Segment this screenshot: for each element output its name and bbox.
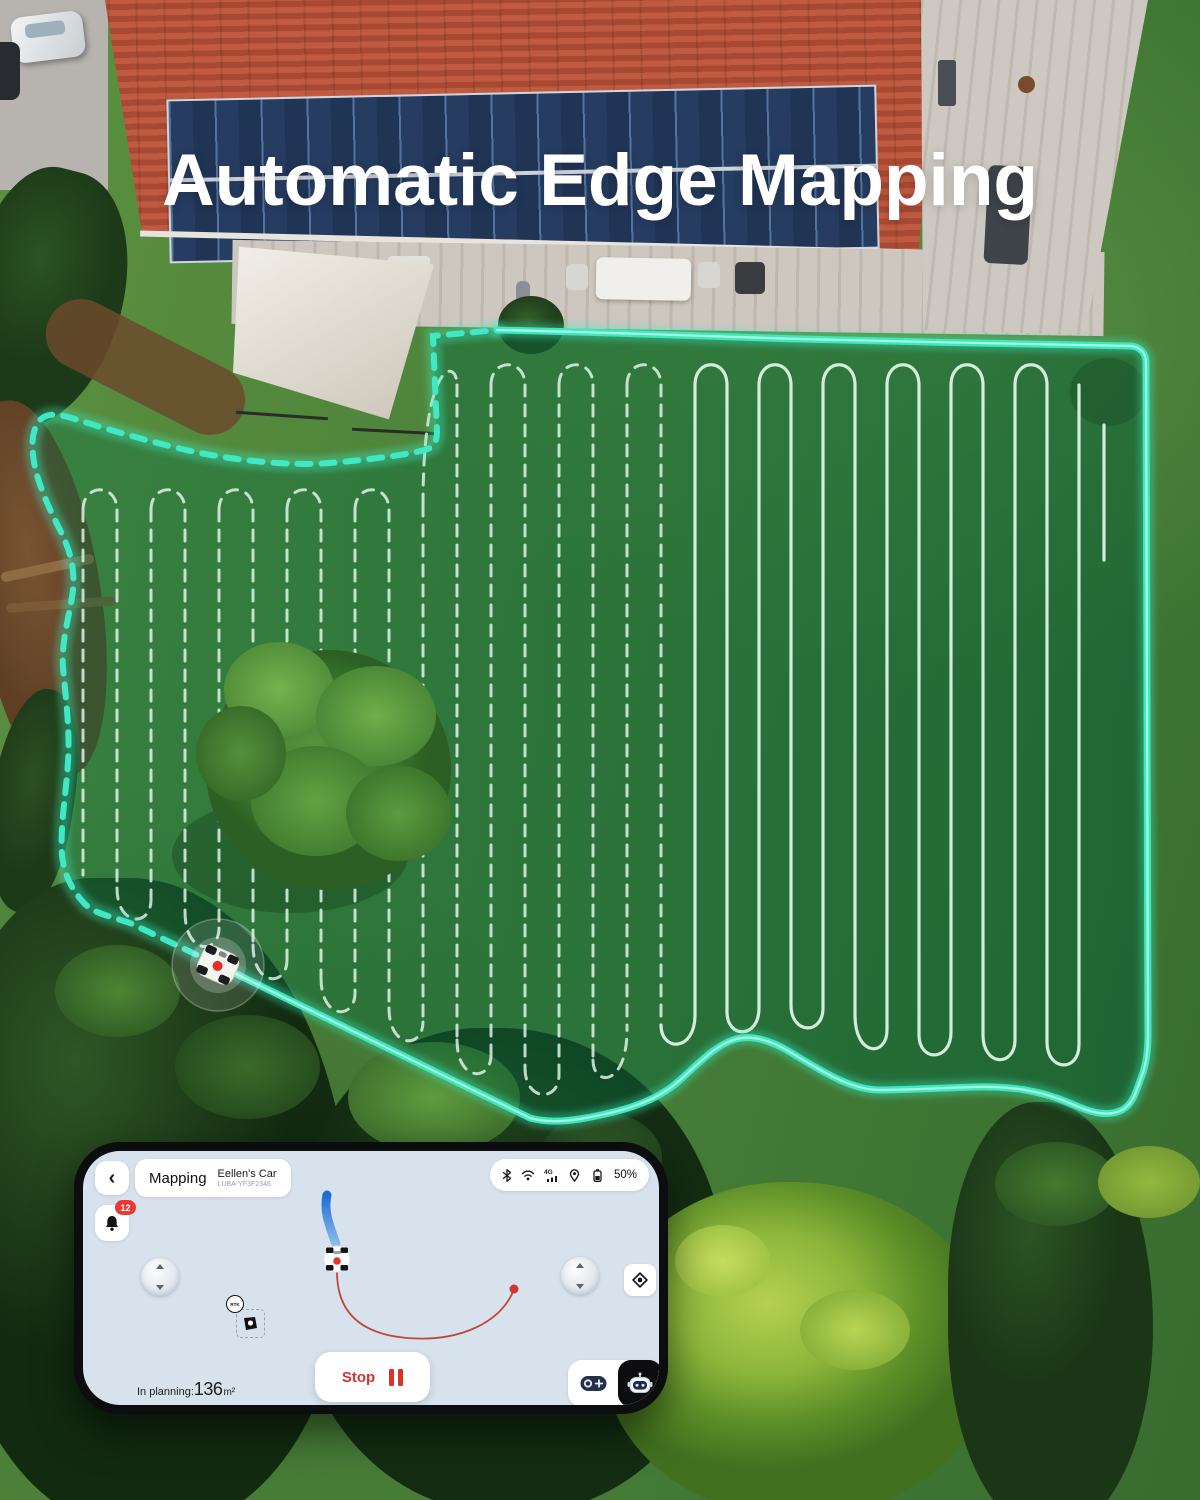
location-icon (568, 1168, 581, 1182)
robot-mower (172, 919, 264, 1011)
rtk-station-marker[interactable]: RTK (236, 1309, 265, 1338)
planning-unit: m² (223, 1387, 235, 1398)
station-icon (242, 1315, 259, 1332)
device-header[interactable]: Mapping Eellen's Car LUBA-YF3F2346 (135, 1159, 291, 1197)
hero-image: Automatic Edge Mapping (0, 0, 1200, 1500)
trace-blue-path (326, 1195, 336, 1244)
trace-endpoint (510, 1285, 519, 1294)
page-title: Automatic Edge Mapping (0, 139, 1200, 222)
phone-mockup: ‹ Mapping Eellen's Car LUBA-YF3F2346 (74, 1142, 668, 1414)
trace-red-path (337, 1272, 513, 1339)
right-joystick[interactable] (561, 1257, 599, 1295)
robot-mode-tab[interactable] (618, 1360, 659, 1405)
bell-icon (103, 1214, 121, 1232)
robot-map-icon (324, 1246, 350, 1272)
device-name: Eellen's Car (218, 1168, 277, 1180)
manual-control-tab[interactable] (568, 1360, 618, 1405)
pause-icon (389, 1369, 403, 1386)
status-bar: 4G 50% (490, 1159, 649, 1191)
notifications-button[interactable]: 12 (95, 1205, 129, 1241)
bluetooth-icon (502, 1169, 512, 1182)
planning-value: 136 (194, 1379, 223, 1400)
battery-icon (590, 1169, 605, 1182)
svg-text:4G: 4G (544, 1169, 553, 1176)
battery-percent: 50% (614, 1169, 637, 1181)
back-button[interactable]: ‹ (95, 1161, 129, 1195)
4g-signal-icon: 4G (544, 1168, 559, 1182)
stop-label: Stop (342, 1369, 375, 1386)
zone-shadow-spot (1070, 358, 1146, 426)
wifi-icon (521, 1169, 535, 1181)
app-screen: ‹ Mapping Eellen's Car LUBA-YF3F2346 (83, 1151, 659, 1405)
locate-button[interactable] (624, 1264, 656, 1296)
device-id: LUBA-YF3F2346 (218, 1180, 277, 1189)
device-info: Eellen's Car LUBA-YF3F2346 (218, 1168, 277, 1189)
notification-badge: 12 (115, 1200, 136, 1215)
robot-icon (627, 1372, 653, 1396)
stop-button[interactable]: Stop (315, 1352, 430, 1402)
locate-icon (629, 1269, 651, 1291)
left-joystick[interactable] (141, 1258, 179, 1296)
mode-switcher (568, 1360, 659, 1405)
gamepad-icon (580, 1374, 607, 1393)
page-label: Mapping (149, 1170, 207, 1187)
rtk-badge: RTK (226, 1295, 244, 1313)
back-icon: ‹ (109, 1167, 116, 1190)
large-tree (196, 636, 464, 908)
planning-label: In planning: (137, 1386, 194, 1398)
planning-area-readout: In planning: 136 m² (137, 1379, 235, 1400)
